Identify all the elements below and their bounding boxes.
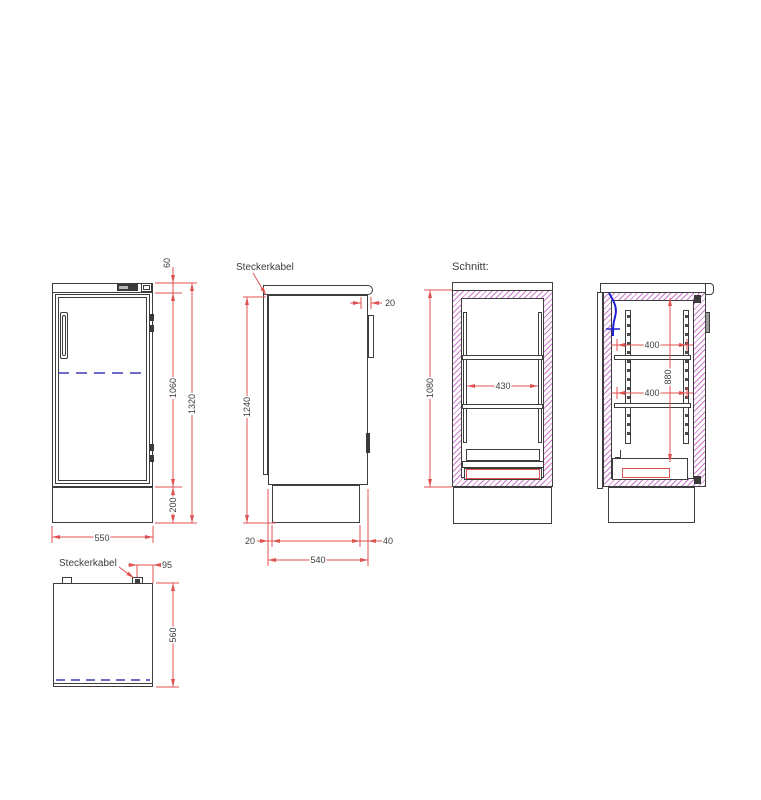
dim-top-depth: 560 (168, 626, 178, 643)
steckerkabel-label-top: Steckerkabel (59, 558, 117, 569)
dim-lower-shelf-depth: 400 (643, 388, 660, 398)
center-lines (56, 373, 150, 680)
steckerkabel-label-side: Steckerkabel (236, 262, 294, 273)
dimension-overlay (0, 0, 761, 800)
dim-depth: 540 (309, 555, 326, 565)
dim-rail-height: 880 (663, 368, 673, 385)
dim-worktop-overhang: 20 (384, 298, 396, 308)
section-side-dimensions (611, 298, 693, 462)
dim-total-height: 1320 (187, 393, 197, 415)
dim-front-inset: 40 (382, 536, 394, 546)
dim-top-panel: 60 (162, 257, 172, 269)
dim-cable-offset: 95 (161, 560, 173, 570)
power-cable (606, 293, 620, 336)
section-title: Schnitt: (452, 261, 489, 273)
dim-back-inset: 20 (244, 536, 256, 546)
side-view-dimensions (243, 273, 384, 566)
dim-base-height: 200 (168, 496, 178, 513)
section-front-dimensions (424, 290, 538, 487)
drawing-canvas: Schnitt: Steckerkabel Steckerkabel 60 10… (0, 0, 761, 800)
dim-body-height: 1240 (242, 396, 252, 418)
dim-inner-height: 1080 (425, 377, 435, 399)
dim-upper-shelf-depth: 400 (643, 340, 660, 350)
dim-width: 550 (93, 533, 110, 543)
dim-inner-width: 430 (494, 381, 511, 391)
dim-door-height: 1060 (168, 377, 178, 399)
